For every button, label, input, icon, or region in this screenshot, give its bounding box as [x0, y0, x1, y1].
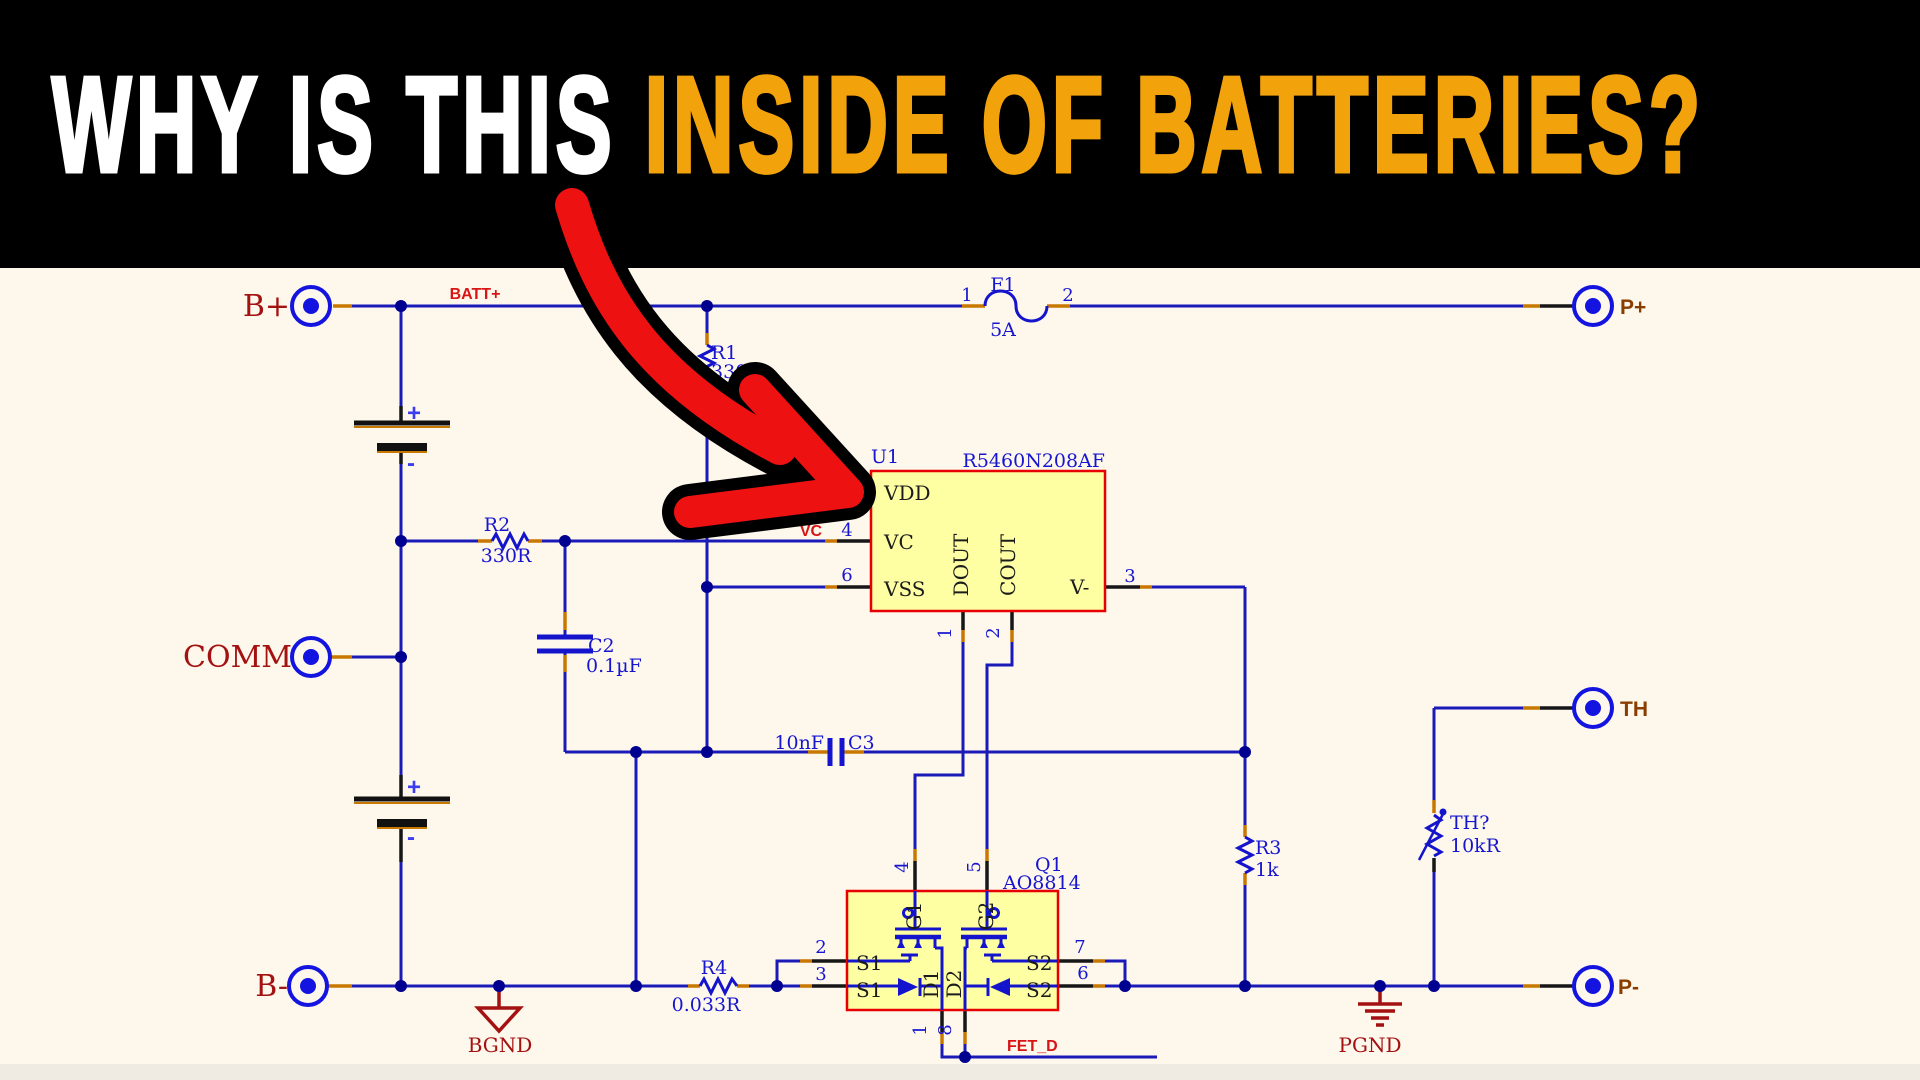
p-minus-port-label: P- — [1618, 976, 1639, 999]
u1-ref: U1 — [871, 446, 899, 468]
r3-ref: R3 — [1255, 837, 1281, 859]
q1-pin-d1: D1 — [919, 970, 943, 999]
q1-pin-d2: D2 — [942, 970, 966, 999]
r3-value: 1k — [1255, 859, 1279, 881]
q1-pin-number-3: 3 — [815, 964, 826, 985]
u1-pin-number-2: 2 — [983, 627, 1004, 638]
c3-ref: C3 — [848, 732, 875, 754]
q1-pin-g1: G1 — [902, 902, 926, 931]
q1-pin-number-6: 6 — [1077, 963, 1088, 984]
bgnd-label: BGND — [468, 1033, 533, 1057]
u1-pin-vss: VSS — [883, 577, 926, 601]
c3-value: 10nF — [774, 732, 824, 754]
batt-plus-net-label: BATT+ — [450, 286, 501, 303]
schematic-canvas: B+ COMM B- P+ TH P- BATT+ VC FET_D BGND … — [0, 0, 1920, 1080]
fet-d-net-label: FET_D — [1007, 1038, 1058, 1055]
comm-label: COMM — [183, 640, 292, 675]
battery1-plus-mark: + — [407, 400, 421, 427]
r2-value: 330R — [481, 545, 532, 567]
u1-part-number: R5460N208AF — [963, 450, 1105, 472]
b-plus-label: B+ — [243, 289, 290, 324]
u1-pin-cout: COUT — [996, 533, 1020, 596]
u1-pin-vminus: V- — [1069, 575, 1089, 599]
thermistor-value: 10kR — [1450, 835, 1501, 857]
bottom-strip — [0, 1064, 1920, 1080]
f1-pin2: 2 — [1062, 285, 1073, 306]
p-plus-port-label: P+ — [1620, 296, 1646, 319]
q1-pin-number-1: 1 — [910, 1024, 931, 1035]
pgnd-label: PGND — [1339, 1033, 1402, 1057]
u1-pin-number-6: 6 — [841, 565, 852, 586]
q1-pin-g2: G2 — [974, 902, 998, 931]
f1-pin1: 1 — [961, 285, 972, 306]
r4-ref: R4 — [701, 957, 727, 979]
q1-pin-s1-bottom: S1 — [856, 978, 882, 1002]
q1-pin-number-4: 4 — [892, 861, 913, 872]
r4-value: 0.033R — [672, 994, 741, 1016]
q1-pin-s2-top: S2 — [1026, 951, 1052, 975]
q1-pin-s2-bottom: S2 — [1026, 978, 1052, 1002]
b-minus-label: B- — [255, 969, 288, 1004]
u1-pin-number-3: 3 — [1124, 566, 1135, 587]
u1-pin-dout: DOUT — [949, 533, 973, 596]
q1-part-number: AO8814 — [1002, 872, 1081, 894]
th-port-label: TH — [1620, 698, 1648, 721]
thermistor-ref: TH? — [1450, 812, 1489, 834]
r2-ref: R2 — [484, 514, 510, 536]
thumbnail-root: WHY IS THIS INSIDE OF BATTERIES? — [0, 0, 1920, 1080]
u1-pin-vc: VC — [883, 530, 914, 554]
u1-pin-number-4: 4 — [841, 520, 852, 541]
c2-ref: C2 — [588, 635, 615, 657]
thermistor-dot — [1440, 809, 1447, 816]
f1-value: 5A — [990, 319, 1016, 341]
f1-ref: F1 — [990, 274, 1015, 296]
c2-value: 0.1µF — [586, 655, 642, 677]
battery2-plus-mark: + — [407, 774, 421, 801]
u1-pin-vdd: VDD — [883, 481, 931, 505]
battery2-minus-mark: - — [407, 824, 415, 851]
u1-pin-number-1: 1 — [935, 627, 956, 638]
q1-pin-number-5: 5 — [964, 861, 985, 872]
q1-pin-number-7: 7 — [1074, 937, 1085, 958]
q1-pin-s1-top: S1 — [856, 951, 882, 975]
q1-pin-number-2: 2 — [815, 937, 826, 958]
q1-pin-number-8: 8 — [935, 1024, 956, 1035]
battery1-minus-mark: - — [407, 450, 415, 477]
